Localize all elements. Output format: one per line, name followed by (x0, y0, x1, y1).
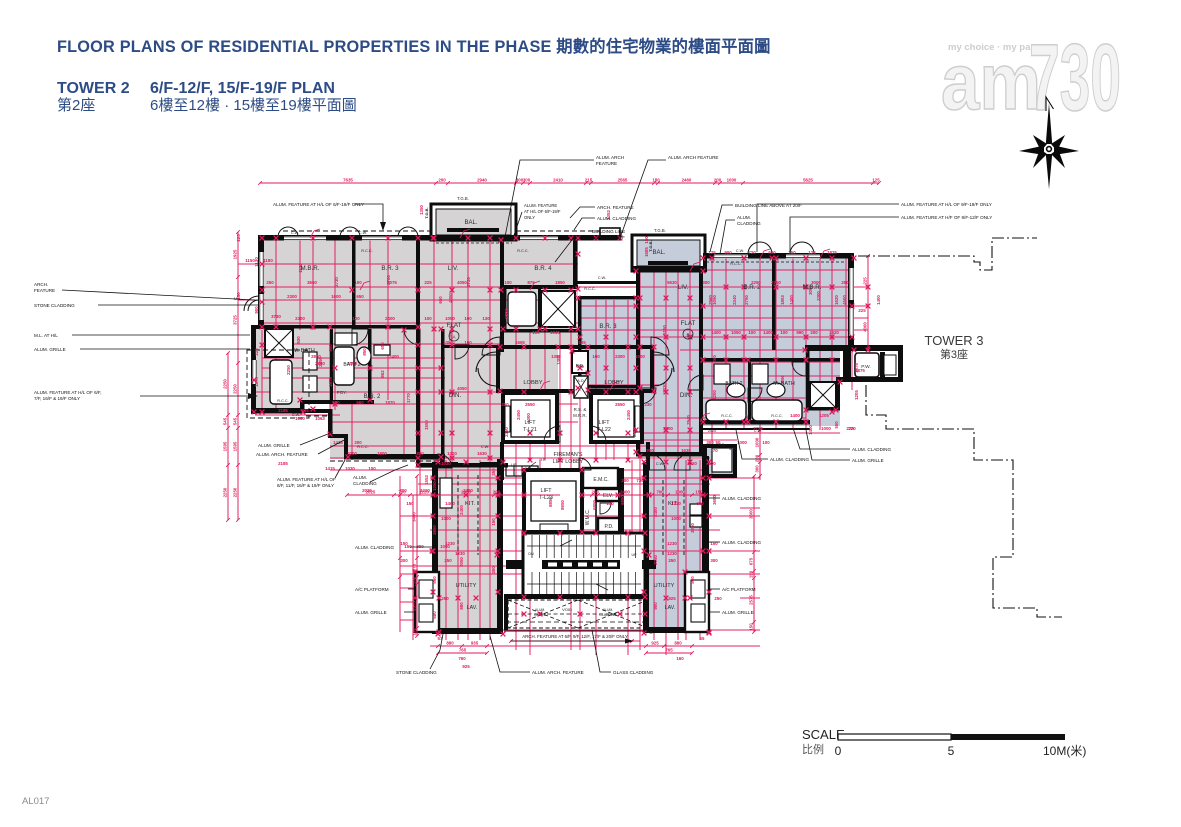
svg-text:ALUM. FEATURE AT H/L OF: ALUM. FEATURE AT H/L OF (277, 477, 336, 482)
svg-text:200: 200 (755, 454, 760, 462)
svg-text:2575: 2575 (749, 595, 754, 605)
svg-text:7/F, 16/F & 19/F ONLY: 7/F, 16/F & 19/F ONLY (34, 396, 80, 401)
svg-text:ALUM. FEATURE AT H/F OF 9/F-12: ALUM. FEATURE AT H/F OF 9/F-12/F ONLY (901, 215, 992, 220)
svg-text:STONE CLADDING: STONE CLADDING (396, 670, 437, 675)
svg-text:UTILITY: UTILITY (456, 583, 477, 589)
svg-text:2850: 2850 (318, 357, 323, 367)
svg-text:900: 900 (328, 344, 333, 352)
svg-text:ARCH. FEATURE: ARCH. FEATURE (597, 205, 634, 210)
svg-text:1000: 1000 (821, 426, 831, 431)
svg-text:ALUM. FEATURE AT H/L OF 6/F-19: ALUM. FEATURE AT H/L OF 6/F-19/F ONLY (273, 202, 364, 207)
svg-text:100: 100 (352, 316, 360, 321)
svg-text:2250: 2250 (223, 487, 228, 497)
svg-text:LAV.: LAV. (665, 605, 675, 611)
svg-text:ARCH. FEATURE AT 6/F, 9/F, 12/: ARCH. FEATURE AT 6/F, 9/F, 12/F, 17/F & … (522, 634, 628, 639)
svg-text:2550: 2550 (525, 402, 535, 407)
svg-text:1770: 1770 (406, 393, 411, 403)
svg-text:850: 850 (362, 348, 367, 356)
svg-text:P.D.: P.D. (718, 442, 725, 447)
svg-text:2565: 2565 (618, 178, 628, 183)
svg-text:DN: DN (528, 552, 534, 556)
svg-text:675: 675 (749, 557, 754, 565)
svg-text:C.W.: C.W. (292, 413, 300, 417)
svg-text:M. BATH: M. BATH (293, 348, 315, 354)
svg-text:3650: 3650 (307, 280, 317, 285)
svg-text:1550: 1550 (424, 420, 429, 430)
svg-text:6850: 6850 (592, 500, 597, 510)
svg-text:FEATURE: FEATURE (34, 288, 55, 293)
svg-text:1030: 1030 (441, 461, 451, 466)
svg-text:TOWER 3: TOWER 3 (925, 333, 984, 348)
svg-text:150: 150 (606, 501, 614, 506)
svg-text:1050: 1050 (731, 330, 741, 335)
svg-text:720: 720 (748, 250, 756, 255)
svg-text:P.W.: P.W. (861, 364, 871, 370)
svg-text:R.C.C.: R.C.C. (584, 287, 595, 291)
svg-text:880: 880 (446, 641, 454, 646)
svg-text:2750: 2750 (744, 295, 749, 305)
svg-text:1400: 1400 (808, 425, 813, 435)
svg-text:5150: 5150 (662, 325, 667, 335)
svg-text:1595: 1595 (233, 441, 238, 451)
svg-text:FLAT: FLAT (447, 322, 462, 329)
svg-text:T.G.B.: T.G.B. (457, 196, 469, 201)
svg-text:R.C.C.: R.C.C. (357, 445, 368, 449)
svg-text:765: 765 (665, 648, 673, 653)
svg-text:UP: UP (511, 463, 517, 467)
svg-text:ALUM. CLADDING: ALUM. CLADDING (852, 447, 891, 452)
svg-text:2185: 2185 (278, 461, 288, 466)
svg-text:E.M.C.: E.M.C. (593, 477, 608, 483)
svg-text:LIFT LOBBY: LIFT LOBBY (553, 459, 584, 465)
svg-text:545: 545 (233, 417, 238, 425)
svg-text:FIREMAN'S: FIREMAN'S (554, 452, 583, 458)
svg-text:1000: 1000 (675, 490, 685, 495)
svg-text:R.C.C.: R.C.C. (730, 262, 741, 266)
svg-text:BUILDING LINE: BUILDING LINE (592, 229, 625, 234)
svg-text:2450: 2450 (626, 410, 631, 420)
svg-text:100: 100 (780, 330, 788, 335)
svg-text:ALUM. CLADDING: ALUM. CLADDING (355, 545, 394, 550)
svg-text:130: 130 (482, 316, 490, 321)
svg-text:2575: 2575 (412, 601, 417, 611)
svg-text:250: 250 (714, 596, 722, 601)
svg-text:M.R.R.: M.R.R. (573, 413, 587, 418)
svg-text:100: 100 (592, 354, 600, 359)
svg-text:B: B (686, 333, 689, 338)
svg-text:2300: 2300 (287, 294, 297, 299)
svg-text:P.D.: P.D. (646, 630, 653, 635)
svg-text:B.R. 4: B.R. 4 (534, 265, 552, 272)
svg-text:1803: 1803 (780, 295, 785, 305)
svg-text:ABOVE AT 20/F: ABOVE AT 20/F (592, 235, 625, 240)
svg-text:4000: 4000 (863, 322, 868, 332)
svg-text:535: 535 (578, 340, 586, 345)
svg-text:1300: 1300 (556, 355, 561, 365)
svg-text:8650: 8650 (560, 500, 565, 510)
svg-text:M. BATH: M. BATH (773, 381, 795, 387)
svg-text:1000: 1000 (755, 437, 760, 447)
svg-text:ALUM. CLADDING: ALUM. CLADDING (722, 540, 761, 545)
svg-text:200: 200 (714, 178, 722, 183)
svg-text:B.R. 3: B.R. 3 (599, 323, 617, 330)
svg-text:T-L21: T-L21 (523, 427, 537, 433)
svg-text:2750: 2750 (771, 280, 781, 285)
svg-text:125: 125 (808, 250, 816, 255)
svg-text:A/C PLATFORM: A/C PLATFORM (722, 587, 756, 592)
svg-text:125: 125 (708, 250, 716, 255)
svg-text:100: 100 (368, 466, 376, 471)
svg-text:1630: 1630 (477, 451, 487, 456)
svg-text:1063: 1063 (315, 416, 325, 421)
svg-text:150: 150 (412, 576, 417, 584)
svg-text:900: 900 (653, 602, 658, 610)
svg-text:ALUM.: ALUM. (353, 475, 367, 480)
svg-text:200: 200 (621, 478, 629, 483)
svg-text:300: 300 (696, 501, 704, 506)
svg-text:2460: 2460 (682, 178, 692, 183)
svg-text:1000: 1000 (671, 516, 681, 521)
svg-text:LIFT: LIFT (540, 488, 552, 494)
svg-text:1180: 1180 (263, 258, 273, 263)
svg-text:1875: 1875 (328, 377, 333, 387)
svg-text:925: 925 (651, 641, 659, 646)
svg-text:P.D.: P.D. (576, 363, 585, 369)
svg-text:A/C PLATFORM: A/C PLATFORM (355, 587, 389, 592)
svg-text:2050: 2050 (459, 557, 464, 567)
svg-text:300: 300 (400, 558, 408, 563)
svg-text:900: 900 (724, 250, 732, 255)
svg-text:M.L. AT H/L: M.L. AT H/L (34, 333, 58, 338)
svg-text:150: 150 (491, 518, 496, 526)
svg-text:1230: 1230 (455, 551, 465, 556)
svg-text:am: am (941, 37, 1041, 126)
svg-text:1050: 1050 (445, 316, 455, 321)
svg-text:ALUM. ARCH. FEATURE: ALUM. ARCH. FEATURE (532, 670, 584, 675)
svg-text:LAV.: LAV. (467, 605, 477, 611)
svg-text:3300: 3300 (816, 291, 821, 301)
svg-text:1260: 1260 (712, 355, 717, 365)
svg-text:1230: 1230 (667, 541, 677, 546)
svg-text:2185: 2185 (278, 408, 288, 413)
svg-text:1050: 1050 (712, 295, 717, 305)
svg-text:UTILITY: UTILITY (654, 583, 675, 589)
svg-text:2940: 2940 (686, 415, 691, 425)
svg-text:ALUM. GRILLE: ALUM. GRILLE (258, 443, 290, 448)
svg-text:ALUM. FEATURE AT H/L OF 6/F,: ALUM. FEATURE AT H/L OF 6/F, (34, 390, 101, 395)
svg-text:4500: 4500 (842, 295, 847, 305)
svg-text:3400: 3400 (412, 512, 417, 522)
svg-text:R.C.C.: R.C.C. (517, 249, 528, 253)
svg-text:860: 860 (690, 576, 695, 584)
svg-text:FOY.: FOY. (337, 390, 347, 395)
svg-text:545: 545 (223, 417, 228, 425)
svg-text:300: 300 (755, 465, 760, 473)
svg-text:1415: 1415 (333, 440, 343, 445)
svg-text:2300: 2300 (295, 316, 305, 321)
svg-text:300: 300 (702, 280, 710, 285)
svg-text:LOBBY: LOBBY (604, 380, 623, 386)
svg-text:1230: 1230 (667, 551, 677, 556)
svg-text:CLADDING: CLADDING (737, 221, 761, 226)
svg-text:FLAT: FLAT (681, 320, 696, 327)
svg-text:225: 225 (424, 280, 432, 285)
svg-text:W.M.C.: W.M.C. (585, 509, 591, 525)
svg-text:UP: UP (646, 455, 652, 459)
svg-text:A.D.: A.D. (577, 378, 585, 383)
svg-text:2020: 2020 (708, 429, 716, 433)
svg-text:935: 935 (471, 641, 479, 646)
svg-text:10M(米): 10M(米) (1043, 744, 1086, 758)
svg-text:B.R. 2: B.R. 2 (743, 284, 761, 291)
svg-text:T-L23: T-L23 (539, 495, 553, 501)
svg-text:925: 925 (462, 664, 470, 669)
svg-text:3600: 3600 (749, 509, 754, 519)
svg-text:2050: 2050 (653, 555, 658, 565)
svg-text:100: 100 (748, 330, 756, 335)
svg-text:1875: 1875 (854, 363, 859, 373)
svg-text:比例: 比例 (802, 742, 824, 756)
svg-text:950: 950 (504, 308, 509, 316)
svg-text:2410: 2410 (553, 178, 563, 183)
svg-text:925: 925 (668, 596, 676, 601)
svg-text:T-L22: T-L22 (597, 427, 611, 433)
svg-text:LIV.: LIV. (678, 284, 689, 291)
svg-text:P.D.: P.D. (604, 524, 613, 530)
svg-text:225: 225 (858, 308, 866, 313)
svg-text:ALUM. ARCH FEATURE: ALUM. ARCH FEATURE (668, 155, 718, 160)
svg-text:3850: 3850 (432, 525, 437, 535)
svg-text:M.B.R.: M.B.R. (803, 284, 822, 291)
svg-text:1220: 1220 (447, 451, 457, 456)
svg-text:2700: 2700 (386, 275, 391, 285)
svg-text:6樓至12樓 · 15樓至19樓平面圖: 6樓至12樓 · 15樓至19樓平面圖 (150, 97, 357, 114)
svg-text:250: 250 (501, 402, 509, 407)
svg-text:4850: 4850 (448, 293, 453, 303)
svg-text:T.G.B.: T.G.B. (424, 207, 429, 218)
svg-text:1925: 1925 (233, 249, 238, 259)
svg-text:5630: 5630 (667, 280, 677, 285)
svg-text:VOID: VOID (562, 607, 572, 612)
svg-text:860: 860 (432, 576, 437, 584)
svg-text:AT H/L OF 6/F-19/F: AT H/L OF 6/F-19/F (524, 209, 561, 214)
svg-text:H.R.: H.R. (540, 458, 547, 462)
svg-text:862: 862 (380, 370, 385, 378)
svg-text:250: 250 (444, 558, 452, 563)
svg-text:1400: 1400 (789, 295, 794, 305)
svg-text:100: 100 (424, 316, 432, 321)
svg-text:1205: 1205 (854, 390, 859, 400)
svg-text:BATH 2: BATH 2 (343, 362, 360, 368)
svg-text:250: 250 (841, 280, 849, 285)
svg-text:4050: 4050 (457, 386, 467, 391)
svg-text:930: 930 (296, 336, 301, 344)
svg-text:1415: 1415 (325, 466, 335, 471)
svg-text:55: 55 (700, 636, 705, 641)
svg-text:150: 150 (400, 541, 408, 546)
svg-text:250: 250 (266, 280, 274, 285)
svg-text:CLADDING: CLADDING (353, 481, 377, 486)
svg-text:KIT.: KIT. (465, 501, 475, 507)
svg-text:1400: 1400 (876, 295, 881, 305)
svg-text:1630: 1630 (681, 448, 691, 453)
svg-text:1595: 1595 (223, 441, 228, 451)
svg-text:1045: 1045 (550, 330, 560, 335)
svg-text:6850: 6850 (620, 495, 625, 505)
svg-text:1565: 1565 (515, 340, 525, 345)
svg-text:ARCH.: ARCH. (34, 282, 48, 287)
svg-text:ALUM. GRILLE: ALUM. GRILLE (355, 610, 387, 615)
svg-text:M.B.R.: M.B.R. (301, 265, 320, 272)
svg-text:LIFT: LIFT (524, 420, 536, 426)
svg-text:2450: 2450 (516, 410, 521, 420)
svg-text:250: 250 (668, 558, 676, 563)
svg-text:ALUM. CLADDING: ALUM. CLADDING (597, 216, 636, 221)
svg-text:0: 0 (835, 744, 842, 758)
svg-text:第3座: 第3座 (940, 347, 968, 361)
svg-text:700: 700 (656, 490, 664, 495)
svg-text:R.C.C.: R.C.C. (721, 414, 732, 418)
svg-text:650: 650 (356, 294, 364, 299)
svg-text:650: 650 (438, 296, 443, 304)
svg-text:1000: 1000 (727, 178, 737, 183)
svg-text:2300: 2300 (615, 354, 625, 359)
svg-text:1000: 1000 (635, 354, 645, 359)
svg-text:225: 225 (236, 234, 241, 242)
svg-text:2025: 2025 (362, 488, 372, 493)
svg-text:2350: 2350 (504, 427, 509, 437)
svg-text:1130: 1130 (254, 257, 259, 267)
svg-text:550: 550 (768, 250, 776, 255)
svg-text:ALUM. ARCH: ALUM. ARCH (596, 155, 624, 160)
svg-text:100: 100 (464, 316, 472, 321)
svg-text:C.W.: C.W. (359, 231, 367, 235)
svg-text:2250: 2250 (286, 365, 291, 375)
svg-text:ALUM. FEATURE AT H/L OF 9/F-19: ALUM. FEATURE AT H/L OF 9/F-19/F ONLY (901, 202, 992, 207)
svg-text:230: 230 (644, 402, 652, 407)
svg-text:FLOOR PLANS OF RESIDENTIAL PRO: FLOOR PLANS OF RESIDENTIAL PROPERTIES IN… (57, 37, 771, 56)
svg-text:300: 300 (416, 544, 424, 549)
svg-text:650: 650 (380, 342, 385, 350)
svg-text:BAL.: BAL. (652, 250, 665, 256)
svg-text:100: 100 (504, 280, 512, 285)
svg-text:1400: 1400 (711, 330, 721, 335)
svg-text:1400: 1400 (763, 330, 773, 335)
svg-text:3850: 3850 (690, 523, 695, 533)
svg-text:880: 880 (674, 641, 682, 646)
svg-text:1460: 1460 (445, 501, 455, 506)
svg-text:2250: 2250 (233, 487, 238, 497)
svg-text:M.R.: M.R. (729, 447, 737, 451)
svg-text:770: 770 (710, 448, 718, 453)
svg-text:2400: 2400 (620, 490, 630, 495)
svg-text:DIN.: DIN. (449, 392, 462, 399)
svg-text:350: 350 (491, 468, 496, 476)
svg-text:680: 680 (432, 611, 437, 619)
svg-text:250: 250 (441, 596, 449, 601)
svg-text:215: 215 (585, 178, 593, 183)
svg-text:900: 900 (254, 306, 259, 314)
svg-text:ALUM. GRILLE: ALUM. GRILLE (34, 347, 66, 352)
svg-text:200: 200 (591, 490, 599, 495)
svg-text:LIV.: LIV. (448, 265, 459, 272)
svg-text:R.C.C.: R.C.C. (361, 249, 372, 253)
svg-text:3725: 3725 (233, 315, 238, 325)
svg-text:1050: 1050 (432, 481, 437, 491)
svg-text:150: 150 (236, 292, 241, 300)
svg-text:200: 200 (438, 178, 446, 183)
svg-text:150: 150 (406, 501, 414, 506)
svg-text:2250: 2250 (223, 379, 228, 389)
svg-text:765: 765 (459, 648, 467, 653)
svg-text:ALUM.: ALUM. (603, 608, 613, 612)
svg-text:3730: 3730 (271, 314, 281, 319)
svg-text:ALUM. CLADDING: ALUM. CLADDING (770, 457, 809, 462)
svg-text:2250: 2250 (233, 384, 238, 394)
svg-text:2000: 2000 (347, 451, 357, 456)
svg-text:1850: 1850 (555, 280, 565, 285)
svg-text:100: 100 (762, 440, 770, 445)
svg-text:1200: 1200 (712, 390, 717, 400)
svg-text:CLADDING: CLADDING (599, 613, 617, 617)
svg-text:R.S. &: R.S. & (574, 407, 587, 412)
svg-text:ALUM. CLADDING: ALUM. CLADDING (722, 496, 761, 501)
svg-text:900: 900 (646, 448, 654, 453)
svg-text:1553: 1553 (424, 475, 429, 485)
svg-text:2400: 2400 (385, 316, 395, 321)
svg-text:2400: 2400 (459, 505, 464, 515)
svg-text:B.R. 3: B.R. 3 (381, 265, 399, 272)
svg-text:150: 150 (749, 623, 754, 631)
svg-text:T.G.B.: T.G.B. (654, 228, 666, 233)
svg-text:160: 160 (676, 656, 684, 661)
svg-text:550: 550 (834, 421, 839, 429)
svg-text:C.W.: C.W. (291, 231, 299, 235)
svg-text:UP: UP (632, 553, 638, 557)
svg-text:1220: 1220 (420, 488, 430, 493)
svg-text:2550: 2550 (615, 402, 625, 407)
svg-text:2940: 2940 (477, 178, 487, 183)
svg-text:2400: 2400 (463, 488, 473, 493)
svg-text:1205: 1205 (819, 413, 829, 418)
svg-text:225: 225 (254, 348, 259, 356)
svg-text:760: 760 (458, 656, 466, 661)
svg-text:第2座: 第2座 (57, 96, 95, 114)
svg-text:LOBBY: LOBBY (523, 380, 542, 386)
svg-text:1825: 1825 (827, 250, 837, 255)
svg-text:1870: 1870 (385, 400, 395, 405)
svg-text:B.R. 2: B.R. 2 (364, 394, 381, 400)
svg-text:ELV.: ELV. (603, 493, 613, 499)
svg-text:150: 150 (749, 570, 754, 578)
svg-text:150: 150 (788, 250, 796, 255)
svg-text:1400: 1400 (790, 413, 800, 418)
svg-text:TOWER 2: TOWER 2 (57, 80, 130, 97)
svg-text:2400: 2400 (389, 354, 399, 359)
svg-text:8/F, 11/F, 16/F & 19/F ONLY: 8/F, 11/F, 16/F & 19/F ONLY (277, 483, 334, 488)
svg-text:300: 300 (491, 566, 496, 574)
svg-text:6/F-12/F, 15/F-19/F PLAN: 6/F-12/F, 15/F-19/F PLAN (150, 80, 335, 97)
svg-text:100: 100 (354, 280, 362, 285)
svg-text:100: 100 (464, 340, 472, 345)
svg-text:C.W.: C.W. (736, 249, 744, 253)
svg-text:1030: 1030 (345, 466, 355, 471)
svg-text:FEATURE: FEATURE (596, 161, 617, 166)
svg-text:1000: 1000 (331, 294, 341, 299)
svg-text:300: 300 (706, 440, 714, 445)
svg-text:1620: 1620 (834, 295, 839, 305)
svg-text:1800: 1800 (377, 451, 387, 456)
